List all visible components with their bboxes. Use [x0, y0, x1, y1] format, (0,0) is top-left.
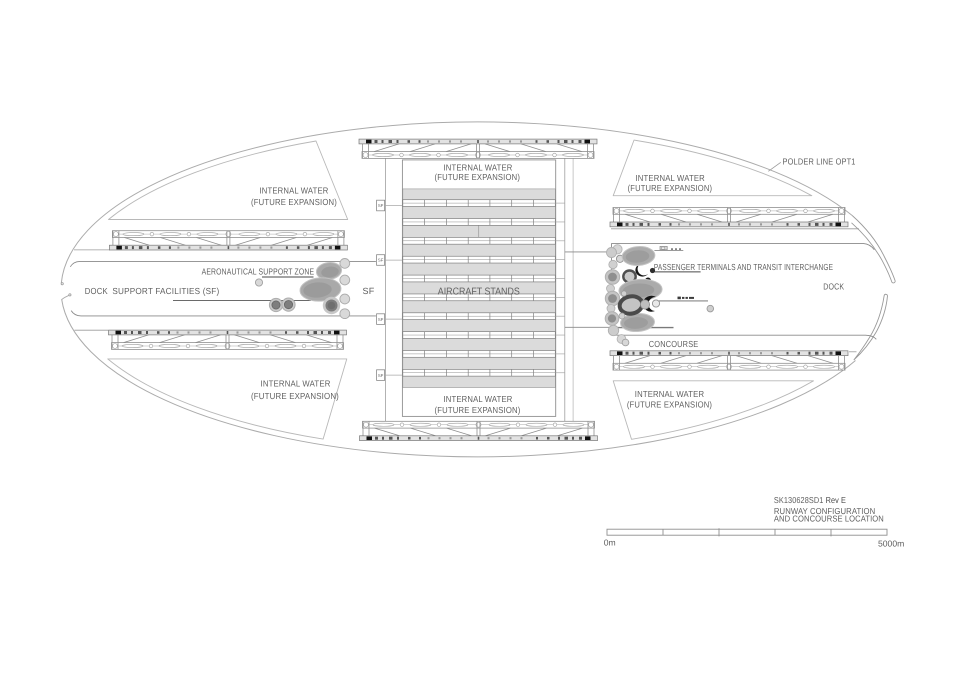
svg-text:(FUTURE EXPANSION): (FUTURE EXPANSION)	[251, 391, 339, 401]
svg-text:DOCK: DOCK	[823, 281, 844, 291]
svg-text:SF: SF	[378, 373, 384, 378]
svg-text:INTERNAL WATER: INTERNAL WATER	[635, 173, 705, 183]
svg-text:INTERNAL WATER: INTERNAL WATER	[260, 185, 329, 195]
svg-text:INTERNAL WATER: INTERNAL WATER	[261, 379, 331, 389]
svg-text:(FUTURE EXPANSION): (FUTURE EXPANSION)	[627, 399, 712, 409]
svg-text:SF: SF	[378, 258, 384, 263]
svg-text:AERONAUTICAL SUPPORT ZONE: AERONAUTICAL SUPPORT ZONE	[202, 266, 315, 276]
svg-text:AIRCRAFT STANDS: AIRCRAFT STANDS	[438, 287, 520, 298]
svg-text:INTERNAL WATER: INTERNAL WATER	[635, 389, 705, 399]
svg-text:SK130628SD1 Rev E: SK130628SD1 Rev E	[774, 495, 846, 505]
svg-text:(FUTURE EXPANSION): (FUTURE EXPANSION)	[251, 197, 337, 207]
svg-text:DOCK: DOCK	[85, 286, 108, 296]
svg-text:AND CONCOURSE LOCATION: AND CONCOURSE LOCATION	[774, 514, 884, 524]
svg-text:POLDER LINE OPT1: POLDER LINE OPT1	[783, 156, 856, 166]
svg-text:(FUTURE EXPANSION): (FUTURE EXPANSION)	[435, 172, 521, 182]
svg-text:SF: SF	[378, 203, 384, 208]
svg-text:0m: 0m	[604, 537, 616, 547]
svg-text:SF: SF	[378, 317, 384, 322]
svg-text:(FUTURE EXPANSION): (FUTURE EXPANSION)	[435, 405, 521, 415]
svg-text:SUPPORT FACILITIES (SF): SUPPORT FACILITIES (SF)	[112, 286, 219, 296]
svg-text:(FUTURE EXPANSION): (FUTURE EXPANSION)	[628, 183, 713, 193]
svg-text:5000m: 5000m	[878, 539, 904, 549]
svg-text:SF: SF	[363, 286, 375, 296]
svg-text:INTERNAL WATER: INTERNAL WATER	[444, 394, 513, 404]
svg-text:CONCOURSE: CONCOURSE	[649, 339, 699, 349]
svg-text:PASSENGER TERMINALS AND TRANSI: PASSENGER TERMINALS AND TRANSIT INTERCHA…	[654, 262, 833, 272]
svg-text:INTERNAL WATER: INTERNAL WATER	[444, 162, 513, 172]
